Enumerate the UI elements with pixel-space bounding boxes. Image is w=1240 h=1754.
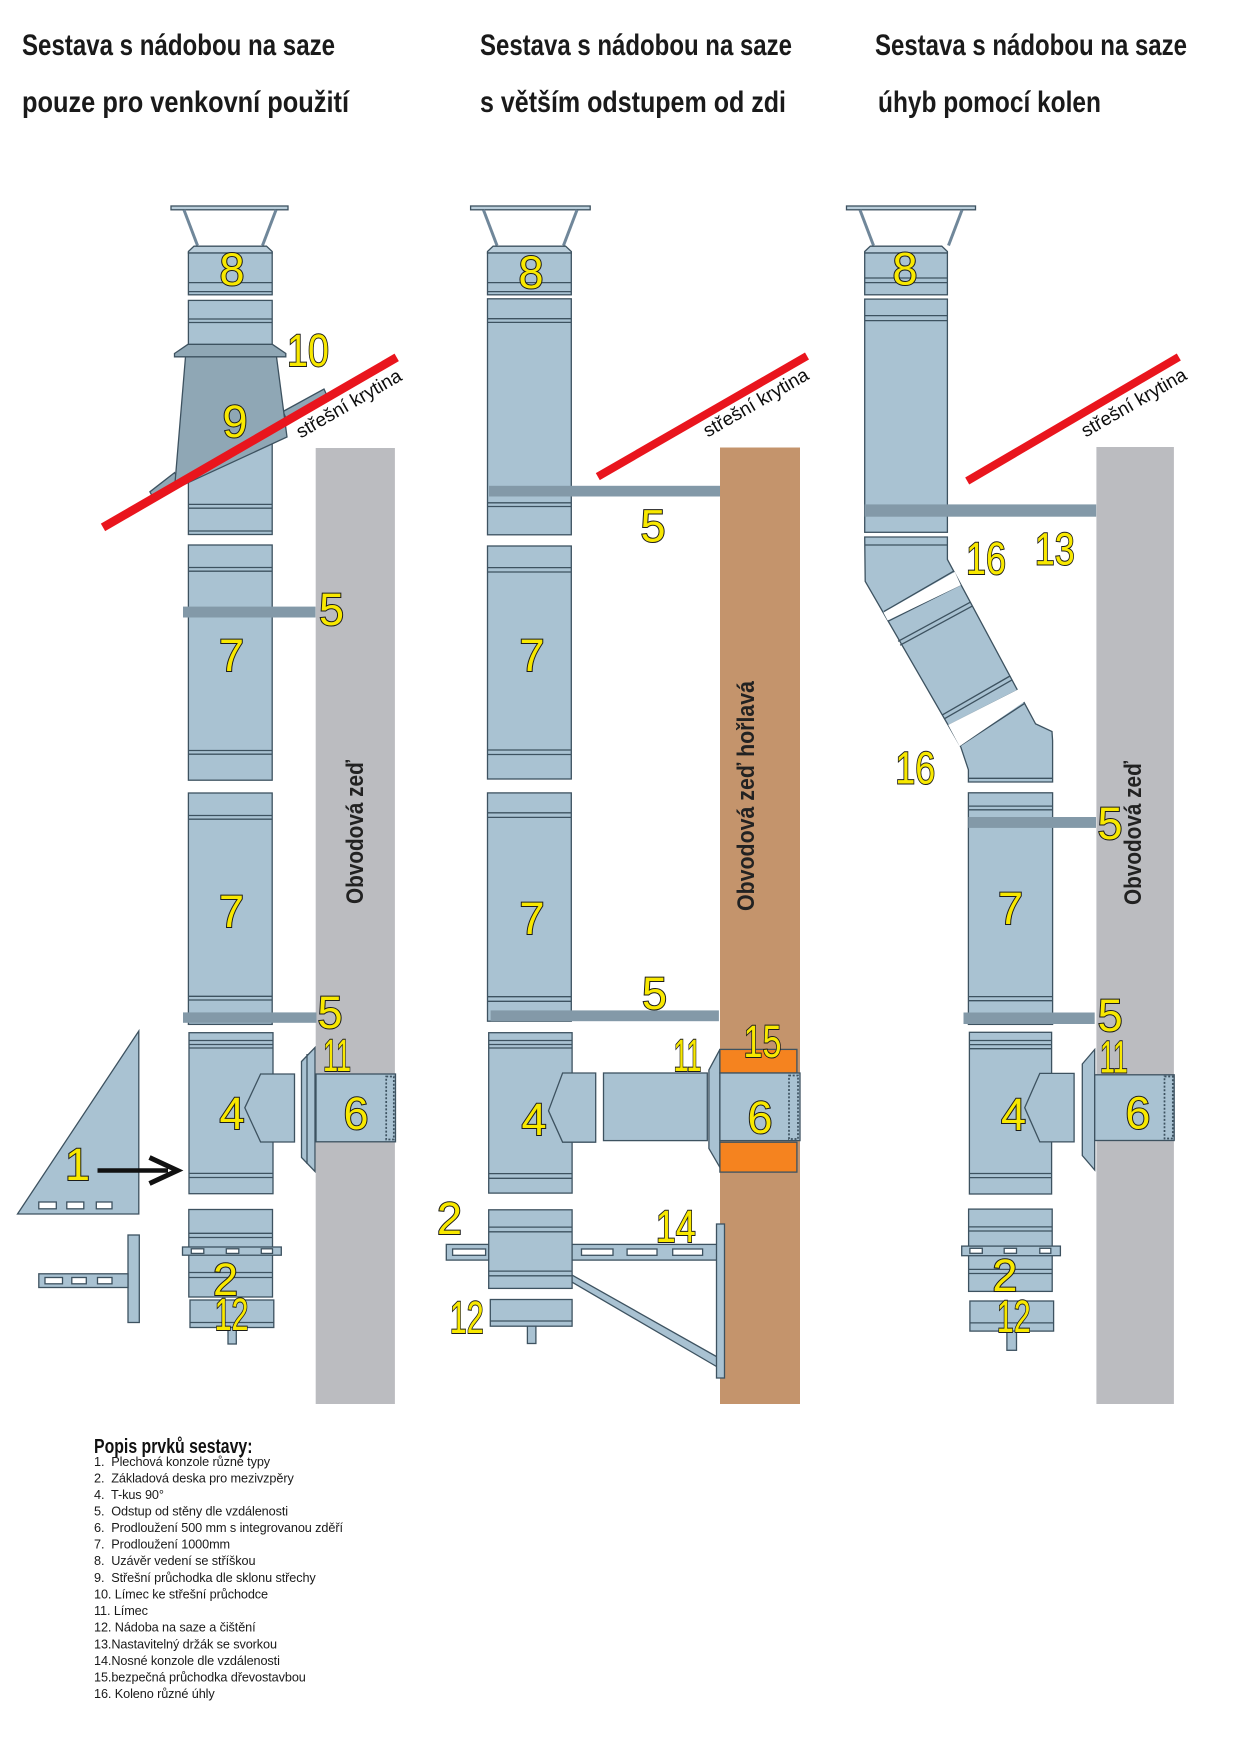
svg-text:12. Nádoba na saze a čištění: 12. Nádoba na saze a čištění xyxy=(94,1621,256,1635)
svg-text:13: 13 xyxy=(1035,524,1075,575)
svg-text:7: 7 xyxy=(998,883,1023,934)
svg-text:11. Límec: 11. Límec xyxy=(94,1604,149,1618)
svg-text:7: 7 xyxy=(219,630,244,681)
svg-text:Sestava s nádobou na saze: Sestava s nádobou na saze xyxy=(875,29,1187,62)
svg-text:11: 11 xyxy=(674,1030,702,1081)
svg-text:15.bezpečná průchodka dřevosta: 15.bezpečná průchodka dřevostavbou xyxy=(94,1671,306,1685)
svg-text:úhyb pomocí kolen: úhyb pomocí kolen xyxy=(878,86,1101,119)
svg-text:2: 2 xyxy=(437,1193,462,1244)
svg-text:Sestava s nádobou na saze: Sestava s nádobou na saze xyxy=(480,29,792,62)
svg-text:9: 9 xyxy=(222,396,247,447)
svg-text:12: 12 xyxy=(450,1292,484,1343)
svg-text:11: 11 xyxy=(323,1030,351,1081)
svg-text:6: 6 xyxy=(747,1092,772,1143)
svg-text:14.Nosné konzole dle vzdálenos: 14.Nosné konzole dle vzdálenosti xyxy=(94,1654,280,1668)
svg-text:4: 4 xyxy=(1001,1089,1026,1140)
svg-text:s větším odstupem od zdi: s větším odstupem od zdi xyxy=(480,86,786,119)
svg-text:Obvodová zeď hořlavá: Obvodová zeď hořlavá xyxy=(733,680,760,911)
svg-text:16. Koleno různé úhly: 16. Koleno různé úhly xyxy=(94,1687,215,1701)
svg-text:12: 12 xyxy=(215,1289,249,1340)
svg-text:8. Uzávěr vedení se stříškou: 8. Uzávěr vedení se stříškou xyxy=(94,1554,255,1568)
svg-text:7: 7 xyxy=(219,886,244,937)
svg-text:15: 15 xyxy=(744,1016,782,1067)
svg-text:16: 16 xyxy=(966,533,1006,584)
svg-text:6: 6 xyxy=(343,1088,368,1139)
svg-text:Obvodová zeď: Obvodová zeď xyxy=(1120,760,1147,905)
svg-text:7. Prodloužení 1000mm: 7. Prodloužení 1000mm xyxy=(94,1538,230,1552)
svg-text:7: 7 xyxy=(519,893,544,944)
svg-text:Obvodová zeď: Obvodová zeď xyxy=(342,759,369,904)
svg-text:5. Odstup od stěny dle vzdále: 5. Odstup od stěny dle vzdálenosti xyxy=(94,1505,288,1519)
svg-text:6: 6 xyxy=(1125,1087,1150,1138)
svg-text:8: 8 xyxy=(892,244,917,295)
svg-text:4. T-kus 90°: 4. T-kus 90° xyxy=(94,1488,164,1502)
svg-text:1: 1 xyxy=(65,1139,90,1190)
svg-text:14: 14 xyxy=(656,1201,696,1252)
svg-text:1. Plechová konzole různé typ: 1. Plechová konzole různé typy xyxy=(94,1455,271,1469)
svg-text:11: 11 xyxy=(1100,1031,1128,1082)
svg-text:6. Prodloužení 500 mm s integ: 6. Prodloužení 500 mm s integrovanou zdě… xyxy=(94,1521,343,1535)
svg-text:Sestava s nádobou na saze: Sestava s nádobou na saze xyxy=(22,29,335,62)
svg-text:2. Základová deska pro mezivz: 2. Základová deska pro mezivzpěry xyxy=(94,1472,294,1486)
svg-text:9. Střešní průchodka dle sklo: 9. Střešní průchodka dle sklonu střechy xyxy=(94,1571,316,1585)
svg-text:5: 5 xyxy=(1097,798,1122,849)
svg-text:12: 12 xyxy=(997,1291,1031,1342)
svg-text:pouze pro venkovní použití: pouze pro venkovní použití xyxy=(22,86,350,119)
svg-text:7: 7 xyxy=(519,630,544,681)
svg-text:10: 10 xyxy=(287,325,329,376)
svg-text:5: 5 xyxy=(319,584,344,635)
svg-text:4: 4 xyxy=(219,1088,244,1139)
svg-text:4: 4 xyxy=(521,1094,546,1145)
svg-text:5: 5 xyxy=(640,501,665,552)
svg-text:10. Límec ke střešní průchodce: 10. Límec ke střešní průchodce xyxy=(94,1588,268,1602)
svg-text:8: 8 xyxy=(518,247,543,298)
svg-text:8: 8 xyxy=(219,244,244,295)
svg-text:16: 16 xyxy=(895,742,935,793)
svg-text:5: 5 xyxy=(642,968,667,1019)
svg-text:13.Nastavitelný držák se svork: 13.Nastavitelný držák se svorkou xyxy=(94,1638,277,1652)
